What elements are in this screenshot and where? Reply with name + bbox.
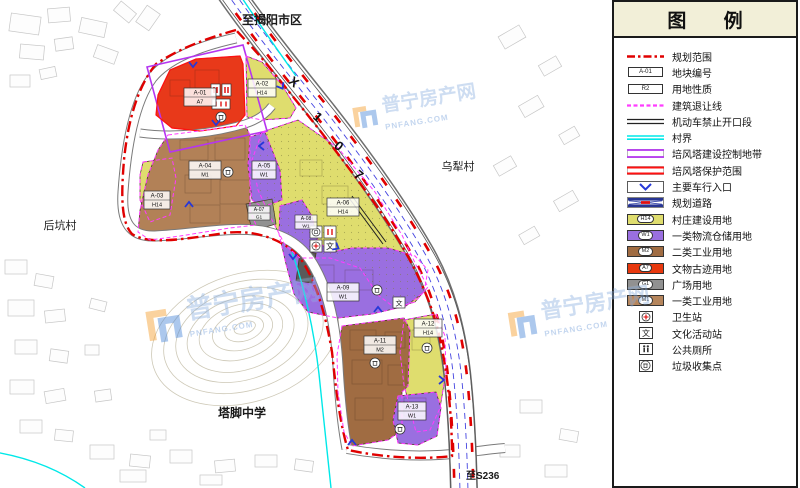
public-toilet-icon <box>641 344 651 354</box>
garbage-point-icon <box>372 285 382 295</box>
planned-road-icon <box>627 197 664 208</box>
place-label-jieyang: 至揭阳市区 <box>242 12 302 27</box>
legend-header: 图 例 <box>614 2 796 38</box>
svg-text:H14: H14 <box>338 210 348 216</box>
svg-text:A-02: A-02 <box>256 82 269 88</box>
heritage-land-swatch: A7 <box>627 263 664 274</box>
map-area: 文 文 A-01A7 A-02H14 A-03H14 A-04M1 A-05W1… <box>0 0 613 488</box>
legend-panel: 图 例 规划范围 A-01 地块编号 R2 用地性质 建筑退让线 <box>612 0 798 488</box>
plot-label-a12: A-12H14 <box>414 319 442 337</box>
legend-item-garbage-point: 垃圾收集点 <box>627 358 796 374</box>
cultural-station-icon: 文 <box>641 328 651 338</box>
main-entrance-swatch <box>627 181 664 192</box>
planning-map-page: 文 文 A-01A7 A-02H14 A-03H14 A-04M1 A-05W1… <box>0 0 800 488</box>
plot-label-a01: A-01A7 <box>184 88 216 106</box>
square-land-swatch: G1 <box>627 279 664 290</box>
plot-label-a05: A-05W1 <box>252 161 276 179</box>
svg-text:W1: W1 <box>408 414 416 420</box>
legend-item-public-toilet: 公共厕所 <box>627 341 796 357</box>
svg-text:A-05: A-05 <box>258 164 271 170</box>
legend-item-heritage-land: A7 文物古迹用地 <box>627 260 796 276</box>
svg-text:A-07: A-07 <box>254 207 265 213</box>
legend-body: 规划范围 A-01 地块编号 R2 用地性质 建筑退让线 机动车禁止开口段 <box>614 38 796 374</box>
tower-control-zone-swatch <box>627 148 664 159</box>
village-boundary-swatch <box>627 132 664 143</box>
legend-item-tower-control-zone: 培风塔建设控制地带 <box>627 146 796 162</box>
svg-text:W1: W1 <box>260 173 268 179</box>
plot-label-a07: A-07G1 <box>248 206 270 221</box>
village-land-swatch: H14 <box>627 214 664 225</box>
south-road <box>347 448 505 456</box>
legend-item-class2-industrial-land: M2 二类工业用地 <box>627 244 796 260</box>
svg-text:A-09: A-09 <box>337 286 350 292</box>
svg-text:文: 文 <box>396 299 403 308</box>
svg-text:H14: H14 <box>152 203 162 209</box>
map-svg: 文 文 A-01A7 A-02H14 A-03H14 A-04M1 A-05W1… <box>0 0 613 488</box>
svg-text:M1: M1 <box>201 173 209 179</box>
legend-item-setback-line: 建筑退让线 <box>627 97 796 113</box>
garbage-point-icon <box>640 360 651 371</box>
planning-boundary-swatch <box>627 51 664 62</box>
plot-label-a04: A-04M1 <box>189 161 221 179</box>
svg-text:A-13: A-13 <box>406 405 419 411</box>
legend-item-plot-number: A-01 地块编号 <box>627 64 796 80</box>
svg-text:A-12: A-12 <box>422 322 435 328</box>
svg-text:M2: M2 <box>376 348 384 354</box>
plot-number-swatch: A-01 <box>628 67 663 77</box>
legend-item-cultural-station: 文 文化活动站 <box>627 325 796 341</box>
place-label-s236: 至S236 <box>466 470 500 482</box>
svg-text:W1: W1 <box>302 224 310 230</box>
svg-text:A-01: A-01 <box>194 91 207 97</box>
legend-item-tower-protection: 培风塔保护范围 <box>627 162 796 178</box>
plot-label-a03: A-03H14 <box>144 191 170 209</box>
svg-text:A-04: A-04 <box>199 164 212 170</box>
garbage-point-icon <box>216 112 226 122</box>
svg-text:H14: H14 <box>423 331 433 337</box>
legend-item-planning-boundary: 规划范围 <box>627 48 796 64</box>
garbage-point-icon <box>395 424 405 434</box>
logistics-land-swatch: W1 <box>627 230 664 241</box>
svg-text:H14: H14 <box>257 91 267 97</box>
legend-title: 图 例 <box>651 6 758 33</box>
svg-text:A-03: A-03 <box>151 194 164 200</box>
place-label-houkeng-village: 后坑村 <box>44 218 77 232</box>
class1-industrial-swatch: M1 <box>627 295 664 306</box>
plot-label-a08: A-08W1 <box>295 215 317 230</box>
legend-item-class1-industrial-land: M1 一类工业用地 <box>627 292 796 308</box>
svg-text:A-06: A-06 <box>337 201 350 207</box>
svg-text:A7: A7 <box>197 100 204 106</box>
plot-label-a13: A-13W1 <box>398 402 426 420</box>
landuse-code-swatch: R2 <box>628 84 663 94</box>
legend-item-logistics-warehouse-land: W1 一类物流仓储用地 <box>627 227 796 243</box>
place-label-wuli-village: 乌犁村 <box>442 159 475 173</box>
legend-item-village-boundary: 村界 <box>627 129 796 145</box>
legend-item-square-land: G1 广场用地 <box>627 276 796 292</box>
svg-text:G1: G1 <box>256 215 263 221</box>
legend-item-planned-road: 规划道路 <box>627 195 796 211</box>
legend-item-landuse-code: R2 用地性质 <box>627 81 796 97</box>
health-station-icon <box>641 312 651 322</box>
plot-label-a06: A-06H14 <box>327 198 359 216</box>
svg-text:A-11: A-11 <box>374 339 387 345</box>
garbage-point-icon <box>422 343 432 353</box>
svg-text:文: 文 <box>642 328 650 338</box>
plot-label-a11: A-11M2 <box>364 336 396 354</box>
legend-item-health-station: 卫生站 <box>627 309 796 325</box>
tower-protection-swatch <box>627 165 664 176</box>
plot-label-a02: A-02H14 <box>248 79 276 97</box>
legend-item-main-entrance: 主要车行入口 <box>627 178 796 194</box>
place-label-tajiao-school: 塔脚中学 <box>218 405 266 420</box>
legend-item-no-vehicle-opening: 机动车禁止开口段 <box>627 113 796 129</box>
setback-line-swatch <box>627 100 664 111</box>
garbage-point-icon <box>370 358 380 368</box>
no-vehicle-opening-swatch <box>627 116 664 127</box>
svg-text:A-08: A-08 <box>301 216 312 222</box>
legend-item-village-construction-land: H14 村庄建设用地 <box>627 211 796 227</box>
svg-text:W1: W1 <box>339 295 347 301</box>
garbage-point-icon <box>223 167 233 177</box>
class2-industrial-swatch: M2 <box>627 246 664 257</box>
plot-label-a09: A-09W1 <box>327 283 359 301</box>
